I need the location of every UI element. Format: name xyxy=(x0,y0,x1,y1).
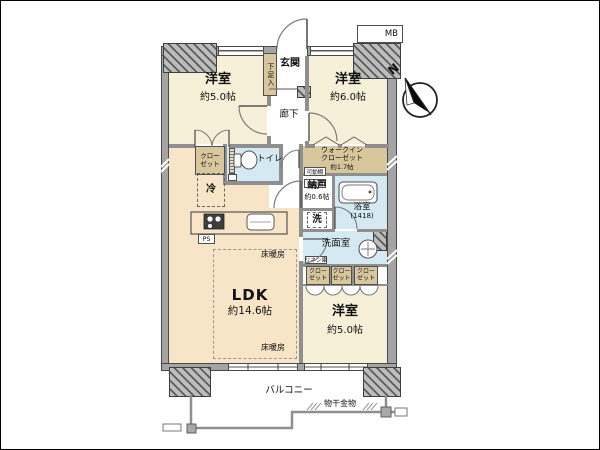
closet-door-arcs xyxy=(195,130,229,147)
ldk-name: LDK xyxy=(232,287,269,304)
toilet-tank-icon xyxy=(234,154,241,167)
ldk-size: 約14.6帖 xyxy=(228,306,272,318)
bedroom-tl-name: 洋室 xyxy=(205,73,231,88)
entrance-label: 玄関 xyxy=(280,58,300,69)
folding-door-marks xyxy=(313,137,367,145)
toilet-label: トイレ xyxy=(257,155,283,165)
door-arc xyxy=(239,106,267,134)
washroom-label: 洗面室 xyxy=(322,239,351,250)
bedroom-tr-name: 洋室 xyxy=(335,73,361,88)
entrance-door-arc xyxy=(277,19,307,49)
balcony-label: バルコニー xyxy=(265,386,312,397)
compass-icon xyxy=(403,78,437,117)
drying-fixture-label: 物干金物 xyxy=(324,400,356,409)
door-arc xyxy=(274,181,301,208)
door-arc xyxy=(309,113,337,141)
floor-plan: MB 下足入 クロー ゼット 冷 PS 洗 可動棚 可動棚 リネン庫 クロー ゼ… xyxy=(0,0,600,450)
balcony-end-cap xyxy=(395,408,407,416)
floor-heating-label: 床暖房 xyxy=(261,344,285,353)
plan-linework xyxy=(1,1,599,449)
balcony-node xyxy=(381,407,391,417)
bedroom-br-size: 約5.0帖 xyxy=(327,325,363,336)
stove-burner xyxy=(208,224,212,228)
hallway-label: 廊下 xyxy=(279,110,298,121)
balcony-end-cap xyxy=(163,424,181,431)
toilet-bowl-icon xyxy=(241,151,257,169)
wic-size: 約1.7帖 xyxy=(330,164,353,171)
balcony-node xyxy=(187,424,196,433)
bedroom-tl-size: 約5.0帖 xyxy=(200,92,236,103)
balcony-railing xyxy=(191,395,404,428)
storage-name: 納戸 xyxy=(307,181,326,192)
bathroom-size: (1418) xyxy=(350,213,373,221)
floor-heating-label: 床暖房 xyxy=(261,251,285,260)
window-ticks xyxy=(248,364,349,370)
bathtub-drain xyxy=(369,191,372,194)
closet-folding-doors xyxy=(306,286,378,295)
wic-label-line2: クローゼット xyxy=(321,155,363,163)
door-arc xyxy=(281,150,299,168)
stove-icon xyxy=(204,214,224,229)
storage-size: 約0.6帖 xyxy=(304,194,329,202)
stove-burner xyxy=(215,216,220,221)
bedroom-br-name: 洋室 xyxy=(332,305,358,320)
bedroom-tr-size: 約6.0帖 xyxy=(330,92,366,103)
stove-burner xyxy=(207,216,212,221)
